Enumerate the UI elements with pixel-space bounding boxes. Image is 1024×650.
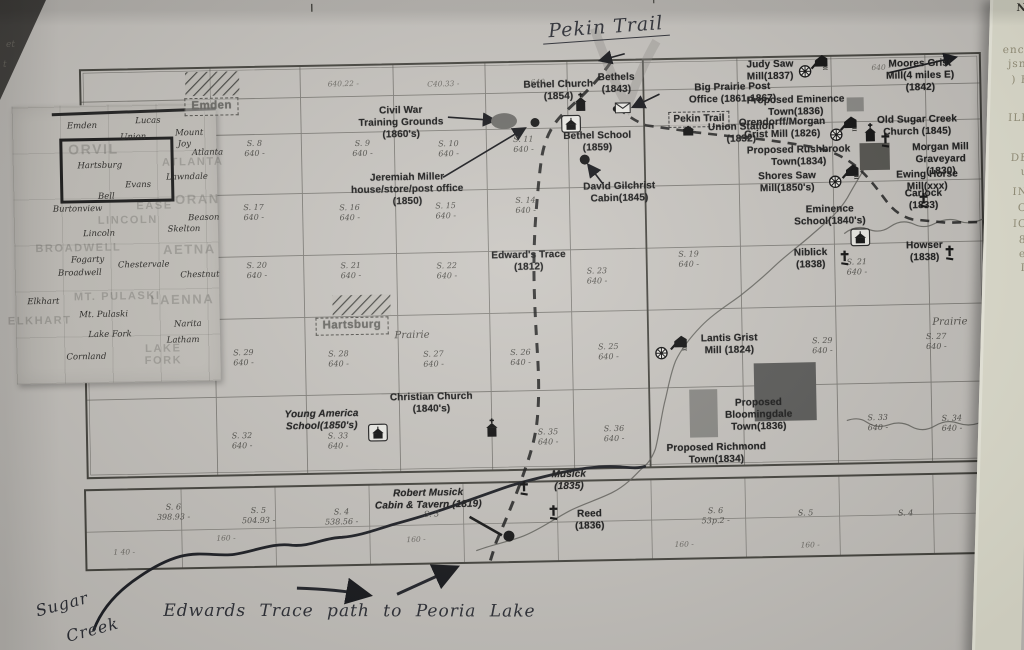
inset-township-name: ELKHART xyxy=(8,314,72,327)
inset-town-name: Lucas xyxy=(135,116,160,126)
inset-town-name: Beason xyxy=(188,213,219,224)
handwritten-edwards-note: Edwards Trace path to Peoria Lake xyxy=(163,601,535,622)
label-proposed-bloomingdale-town: Proposed Bloomingdale Town(1836) xyxy=(725,397,793,434)
morgan-graveyard-cross-icon xyxy=(879,132,892,148)
label-david-gilchrist-cabin: David Gilchrist Cabin(1845) xyxy=(583,180,656,205)
label-howser: Howser (1838) xyxy=(906,240,943,264)
inset-town-name: Joy xyxy=(178,139,192,149)
label-niblick: Niblick (1838) xyxy=(794,247,828,271)
niblick-cross-icon xyxy=(838,249,851,265)
label-proposed-richmond-town: Proposed Richmond Town(1834) xyxy=(666,441,766,466)
inset-town-name: Fogarty xyxy=(71,255,105,266)
section-label: S. 35 640 - xyxy=(538,427,559,448)
section-label: S. 6 398.93 - xyxy=(157,502,191,523)
label-bethels: Bethels (1843) xyxy=(598,72,635,96)
inset-town-name: Elkhart xyxy=(27,297,59,308)
label-moores-grist-mill: Moores Grist Mill(4 miles E) (1842) xyxy=(886,57,955,94)
adjacent-page-text-fragment: 8 xyxy=(1019,234,1024,246)
faint-acreage-mark: 160 - xyxy=(406,535,425,544)
label-christian-church: Christian Church (1840's) xyxy=(390,391,473,416)
inset-town-name: Emden xyxy=(67,121,97,132)
label-eminence-school: Eminence School(1840's) xyxy=(794,203,866,228)
label-town-emden: Emden xyxy=(184,97,239,116)
section-label: S. 25 640 - xyxy=(598,342,619,363)
section-label: S. 29 640 - xyxy=(812,336,833,357)
adjacent-page-text-fragment: NI xyxy=(1016,2,1024,14)
judy-wheel-icon xyxy=(798,64,812,78)
bethel-church-icon xyxy=(572,92,589,112)
faint-acreage-mark: 640.22 - xyxy=(328,79,359,89)
faint-acreage-mark: 1 40 - xyxy=(113,547,135,556)
label-prairie-east: Prairie xyxy=(932,316,967,328)
inset-town-name: Chestnut xyxy=(180,270,219,281)
inset-town-name: Mount xyxy=(175,128,203,139)
adjacent-page-text-fragment: IN xyxy=(1012,186,1024,198)
adjacent-page-text-fragment: ence xyxy=(1003,44,1024,56)
faint-acreage-mark: 160 - xyxy=(674,540,693,549)
inset-town-name: Cornland xyxy=(66,352,106,363)
label-prairie-west: Prairie xyxy=(394,330,429,342)
musick-cross-icon xyxy=(517,480,530,496)
faint-acreage-mark: 640 - xyxy=(871,63,890,72)
section-label: S. 6 53p.2 - xyxy=(701,506,730,527)
section-label: S. 17 640 - xyxy=(243,203,264,224)
section-label: S. 29 640 - xyxy=(233,348,254,369)
adjacent-page-text-fragment: O xyxy=(1018,202,1024,214)
old-sugar-creek-church-icon xyxy=(862,123,879,143)
section-label: S. 5 504.93 - xyxy=(242,506,276,527)
shores-saw-mill-icon xyxy=(841,163,860,179)
union-station-icon xyxy=(682,125,694,135)
inset-township-name: EASE xyxy=(136,199,173,212)
section-label: S. 33 640 - xyxy=(867,413,888,434)
section-label: S. 5 xyxy=(798,508,814,519)
adjacent-page-text-fragment: ILE xyxy=(1008,112,1024,124)
section-label: S. 20 640 - xyxy=(246,261,267,282)
label-union-station: Union Station (1832) xyxy=(708,121,775,146)
inset-town-name: Chestervale xyxy=(118,260,170,271)
section-label: S. 36 640 - xyxy=(604,424,625,445)
lantis-mill-icon xyxy=(670,335,689,351)
label-musick: Musick (1835) xyxy=(551,469,586,493)
faint-acreage-mark: 160 - xyxy=(216,533,235,542)
bethel-school-icon xyxy=(561,115,581,133)
section-label: S. 19 640 - xyxy=(678,249,699,270)
shores-wheel-icon xyxy=(828,175,842,189)
inset-town-name: Hartsburg xyxy=(77,160,122,171)
section-label: S. 8 640 - xyxy=(244,139,265,160)
adjacent-page-text-fragment: IC xyxy=(1013,218,1024,230)
carlock-cross-icon xyxy=(917,192,930,208)
inset-town-name: Evans xyxy=(125,180,151,190)
adjacent-page-text-fragment: DE xyxy=(1011,152,1024,164)
orendorff-wheel-icon xyxy=(829,128,843,142)
label-judy-saw-mill: Judy Saw Mill(1837) xyxy=(746,59,793,83)
label-edwards-trace: Edward's Trace (1812) xyxy=(491,249,566,274)
inset-town-name: Skelton xyxy=(168,224,201,235)
section-label: S. 32 640 - xyxy=(232,431,253,452)
section-label: S. 26 640 - xyxy=(510,348,531,369)
inset-town-name: Mt. Pulaski xyxy=(79,309,128,320)
inset-town-name: Lake Fork xyxy=(88,329,132,340)
judy-saw-mill-icon xyxy=(810,54,829,70)
bethel-post-office-icon xyxy=(615,102,631,113)
young-america-school-icon xyxy=(368,423,388,441)
label-lantis-grist-mill: Lantis Grist Mill (1824) xyxy=(701,332,758,357)
section-label: S. 15 640 - xyxy=(435,201,456,222)
section-label: S. 4 xyxy=(898,508,914,519)
section-label: S. 22 640 - xyxy=(436,261,457,282)
faint-acreage-mark: 160 - xyxy=(800,540,819,549)
photocopy-sheet: Bethel Church (1854)Bethels (1843)Big Pr… xyxy=(0,0,1024,650)
section-label: S. 27 640 - xyxy=(423,349,444,370)
section-label: S. 27 640 - xyxy=(926,332,947,353)
section-label: S. 28 640 - xyxy=(328,349,349,370)
section-label: S. 4 538.56 - xyxy=(325,507,359,528)
label-proposed-eminence-town: Proposed Eminence Town(1836) xyxy=(747,94,845,119)
inset-township-name: MT. PULASKI xyxy=(74,290,161,304)
label-shores-saw-mill: Shores Saw Mill(1850's) xyxy=(758,170,816,195)
adjacent-page-text-fragment: e xyxy=(1019,248,1024,260)
adjacent-page-text-fragment: ) H xyxy=(1011,74,1024,86)
inset-township-name: LINCOLN xyxy=(98,214,158,227)
inset-town-name: Burtonview xyxy=(53,204,103,215)
inset-township-name: ORVIL xyxy=(68,141,119,158)
section-label: S. 11 640 - xyxy=(513,135,534,156)
inset-town-name: Lawndale xyxy=(166,172,208,183)
section-label: S. 16 640 - xyxy=(339,203,360,224)
eminence-school-icon xyxy=(850,228,870,246)
section-label: S. 23 640 - xyxy=(587,266,608,287)
section-label: S. 3 xyxy=(424,509,440,520)
label-young-america-school: Young America School(1850's) xyxy=(285,408,359,433)
inset-township-name: FORK xyxy=(145,354,183,367)
label-reed: Reed (1836) xyxy=(575,508,605,532)
inset-township-name: BROADWELL xyxy=(35,241,121,255)
section-label: S. 14 640 - xyxy=(515,196,536,217)
inset-town-name: Narita xyxy=(174,319,202,330)
section-label: S. 10 640 - xyxy=(438,139,459,160)
section-label: S. 34 640 - xyxy=(941,413,962,434)
inset-township-name: LAENNA xyxy=(150,291,214,307)
margin-mark: t xyxy=(3,60,7,70)
scanned-map-page: Bethel Church (1854)Bethels (1843)Big Pr… xyxy=(0,0,1024,650)
label-bethel-school: Bethel School (1859) xyxy=(563,130,631,155)
map-labels-layer: Bethel Church (1854)Bethels (1843)Big Pr… xyxy=(0,0,1024,650)
label-robert-musick: Robert Musick Cabin & Tavern (1819) xyxy=(375,487,482,513)
label-civil-war-training-grounds: Civil War Training Grounds (1860's) xyxy=(358,104,444,141)
inset-township-name: AETNA xyxy=(163,241,216,257)
reed-cross-icon xyxy=(547,504,560,520)
section-label: S. 33 640 - xyxy=(328,431,349,452)
faint-acreage-mark: C40.33 - xyxy=(427,79,459,89)
faint-acreage-mark: 640 - xyxy=(531,77,550,86)
margin-mark: et xyxy=(6,40,15,50)
howser-cross-icon xyxy=(943,244,956,260)
inset-town-name: Atlanta xyxy=(192,148,223,159)
label-town-hartsburg: Hartsburg xyxy=(315,316,388,335)
christian-church-icon xyxy=(483,418,500,438)
section-label: S. 21 640 - xyxy=(340,261,361,282)
inset-town-name: Bell xyxy=(98,192,115,202)
inset-town-name: Union xyxy=(120,132,146,142)
inset-township-name: ORAN xyxy=(175,191,220,207)
lantis-wheel-icon xyxy=(654,346,668,360)
label-proposed-rushbrook-town: Proposed Rushbrook Town(1834) xyxy=(747,143,851,169)
adjacent-page-text-fragment: u xyxy=(1020,166,1024,178)
adjacent-page-text-fragment: I xyxy=(1020,262,1024,274)
section-label: S. 9 640 - xyxy=(352,139,373,160)
inset-town-name: Latham xyxy=(167,335,200,346)
inset-town-name: Lincoln xyxy=(83,229,115,240)
inset-town-name: Broadwell xyxy=(58,268,102,279)
adjacent-page-text-fragment: jsnf xyxy=(1008,58,1024,70)
